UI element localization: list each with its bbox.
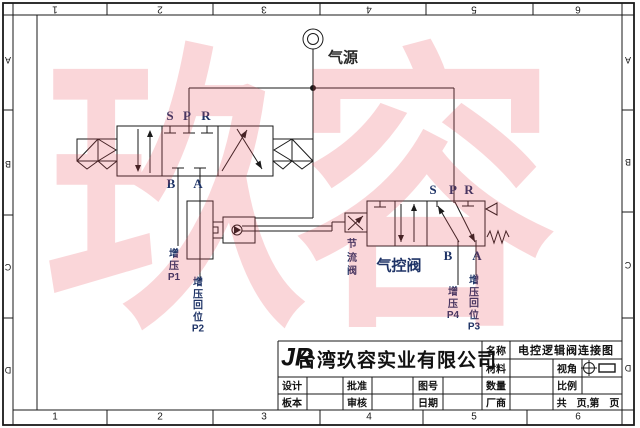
right-valve-p3-label: 增 压 回 位 P3 [468,275,480,333]
right-valve-port-b: B [444,248,453,264]
grid-col-bottom-5: 5 [471,412,477,423]
grid-col-bottom-6: 6 [575,412,581,423]
grid-col-top-6: 6 [575,4,581,15]
supply-lines [189,49,454,218]
grid-row-left-a: A [5,55,11,65]
drawing-no-label: 图号 [418,378,438,393]
design-label: 设计 [282,378,302,393]
grid-col-top-5: 5 [471,4,477,15]
throttle-valve-symbol [345,213,367,232]
left-valve-port-b: B [167,176,176,192]
pilot-valve-label: 气控阀 [376,255,421,276]
grid-col-top-3: 3 [261,4,267,15]
right-valve-port-a: A [472,248,481,264]
pilot-triangle-icon [486,203,497,215]
throttle-valve-label: 节 流 阀 [347,238,357,279]
date-label: 日期 [418,395,438,410]
drawing-title: 电控逻辑阀连接图 [518,342,614,358]
grid-col-bottom-4: 4 [366,412,372,423]
scale-label: 比例 [557,378,577,393]
right-valve-p4-label: 增 压 P4 [447,287,459,322]
booster-block [187,201,345,259]
air-source-label: 气源 [328,47,358,68]
grid-row-right-c: C [625,260,632,270]
material-label: 材料 [486,361,506,376]
grid-row-left-d: D [5,365,12,375]
view-angle-label: 视角 [557,361,577,376]
projection-symbol-icon [581,360,615,376]
approve-label: 批准 [347,378,367,393]
grid-row-right-b: B [625,157,631,167]
grid-col-bottom-3: 3 [261,412,267,423]
air-source-symbol [303,29,323,49]
name-label: 名称 [486,343,506,358]
booster-port-p2-label: 增 压 回 位 P2 [192,277,204,335]
grid-col-bottom-2: 2 [157,412,163,423]
company-name: 台湾玖容实业有限公司 [297,346,497,373]
booster-port-p1-label: 增 压 P1 [168,249,180,284]
grid-row-right-d: D [625,363,632,373]
version-label: 板本 [282,395,302,410]
grid-row-right-a: A [625,55,631,65]
quantity-label: 数量 [486,378,506,393]
grid-row-left-c: C [5,262,12,272]
spring-icon [487,231,509,243]
drawing-sheet: 1 2 3 4 5 6 1 2 3 4 5 6 A B C D A B C D … [0,0,640,428]
right-valve-port-r: R [464,182,473,198]
left-valve-left-actuator [77,139,117,169]
grid-row-left-b: B [5,159,11,169]
right-valve-port-s: S [429,182,436,198]
pages-label: 共 页,第 页 [557,395,620,410]
left-valve-port-r: R [201,108,210,124]
vendor-label: 厂商 [486,395,506,410]
right-valve-port-p: P [449,182,457,198]
grid-col-top-4: 4 [366,4,372,15]
left-valve-port-a: A [193,176,202,192]
grid-col-top-2: 2 [157,4,163,15]
left-valve-right-actuator [273,139,313,169]
grid-col-top-1: 1 [52,4,58,15]
review-label: 审核 [347,395,367,410]
grid-col-bottom-1: 1 [52,412,58,423]
left-valve-port-s: S [166,108,173,124]
left-valve-port-p: P [183,108,191,124]
left-valve [77,126,313,280]
